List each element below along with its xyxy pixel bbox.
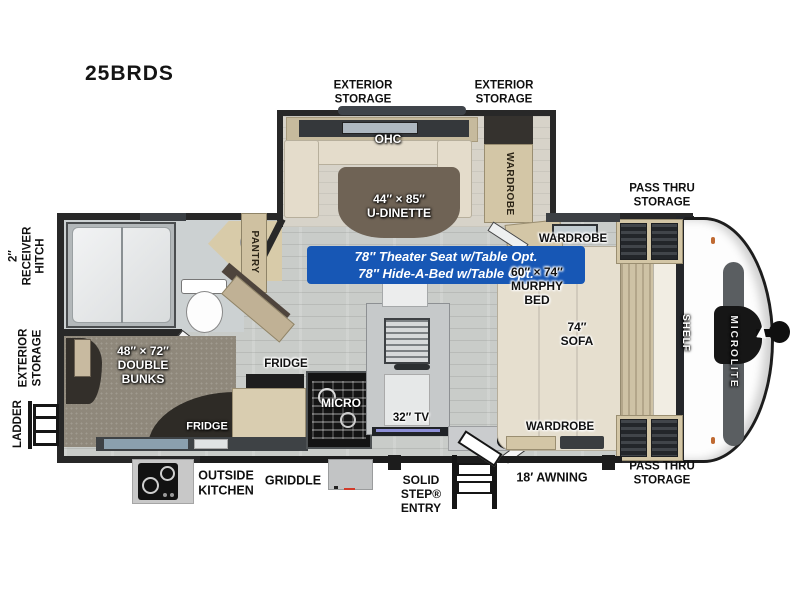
cooktop-knob — [163, 493, 167, 497]
stove-burner-small — [340, 412, 356, 428]
exterior-storage-top-left-label: EXTERIOR STORAGE — [334, 79, 393, 106]
murphy-bed-panel — [620, 257, 656, 425]
ladder-label: LADDER — [12, 400, 26, 448]
pass-thru-storage-bottom-label: PASS THRU STORAGE — [629, 460, 695, 487]
cooktop-knob — [170, 493, 174, 497]
murphy-bed-label: 60″ × 74″ MURPHY BED — [511, 265, 563, 307]
awning-bracket — [602, 455, 615, 470]
cap-marker-light — [711, 437, 715, 444]
slide-wardrobe-cabinet-top — [484, 116, 533, 144]
cabinet-slats — [620, 223, 647, 260]
pantry-label: PANTRY — [248, 231, 260, 274]
tv-lift-rack — [384, 318, 430, 364]
slide-wardrobe-label: WARDROBE — [503, 152, 515, 215]
side-table — [560, 436, 604, 449]
griddle-knob — [334, 486, 338, 489]
ladder-rung — [36, 416, 56, 419]
ohc-label: OHC — [375, 132, 402, 146]
page-title: 25BRDS — [85, 62, 174, 86]
tv-screen — [376, 429, 440, 432]
bunk-step-box — [74, 339, 91, 377]
micro-label: MICRO — [321, 396, 361, 410]
options-line-1: 78″ Theater Seat w/Table Opt. — [307, 248, 585, 266]
tv-stand-top-panel — [382, 283, 428, 307]
front-window — [546, 213, 620, 222]
cabinet-slats — [620, 419, 647, 457]
slide-window — [338, 106, 466, 115]
counter-glass-cover — [104, 439, 188, 449]
shower-door-divider — [121, 227, 123, 323]
bath-window — [140, 213, 186, 221]
awning-rail — [200, 456, 622, 463]
exterior-storage-rear-label: EXTERIOR STORAGE — [17, 329, 44, 388]
shelf-label: SHELF — [679, 314, 691, 352]
ladder-rung — [36, 430, 56, 433]
bath-bottom-wall — [64, 329, 182, 336]
solid-step-entry-label: SOLID STEP® ENTRY — [401, 473, 441, 515]
sofa-label: 74″ SOFA — [561, 320, 594, 348]
floorplan-canvas: 25BRDS — [0, 0, 800, 600]
tv-lift-handle — [394, 364, 430, 370]
fridge-kitchen-label: FRIDGE — [264, 358, 307, 372]
brand-label: MICROLITE — [727, 316, 739, 389]
entry-step-tread — [457, 463, 492, 476]
cooktop-burner — [142, 477, 159, 494]
awning-bracket — [388, 455, 401, 470]
awning-label: 18′ AWNING — [516, 471, 587, 486]
wardrobe-bottom-cabinet — [506, 436, 556, 450]
entry-step-tread — [457, 481, 492, 494]
griddle-label: GRIDDLE — [265, 474, 321, 489]
cabinet-slats — [651, 223, 678, 260]
cabinet-slats — [651, 419, 678, 457]
cutting-board — [194, 439, 228, 449]
ladder-side-rail — [28, 401, 32, 449]
pass-thru-storage-top-label: PASS THRU STORAGE — [629, 182, 695, 209]
wardrobe-top-label: WARDROBE — [539, 233, 607, 247]
hitch-jack-knob — [769, 321, 790, 343]
fridge-bunk-label: FRIDGE — [186, 421, 228, 434]
toilet-bowl — [186, 291, 223, 333]
double-bunks-label: 48″ × 72″ DOUBLE BUNKS — [117, 344, 169, 386]
u-dinette-label: 44″ × 85″ U-DINETTE — [367, 192, 431, 220]
griddle-indicator — [344, 488, 355, 490]
cooktop-burner — [160, 466, 175, 481]
tv-label: 32″ TV — [393, 412, 429, 426]
dinette-bench-left — [284, 140, 319, 218]
ladder-icon — [33, 404, 59, 446]
outside-kitchen-label: OUTSIDE KITCHEN — [198, 468, 254, 498]
exterior-storage-top-right-label: EXTERIOR STORAGE — [475, 79, 534, 106]
cap-marker-light — [711, 237, 715, 244]
receiver-hitch-label: 2″ RECEIVER HITCH — [8, 227, 49, 286]
wardrobe-bottom-label: WARDROBE — [526, 421, 594, 435]
